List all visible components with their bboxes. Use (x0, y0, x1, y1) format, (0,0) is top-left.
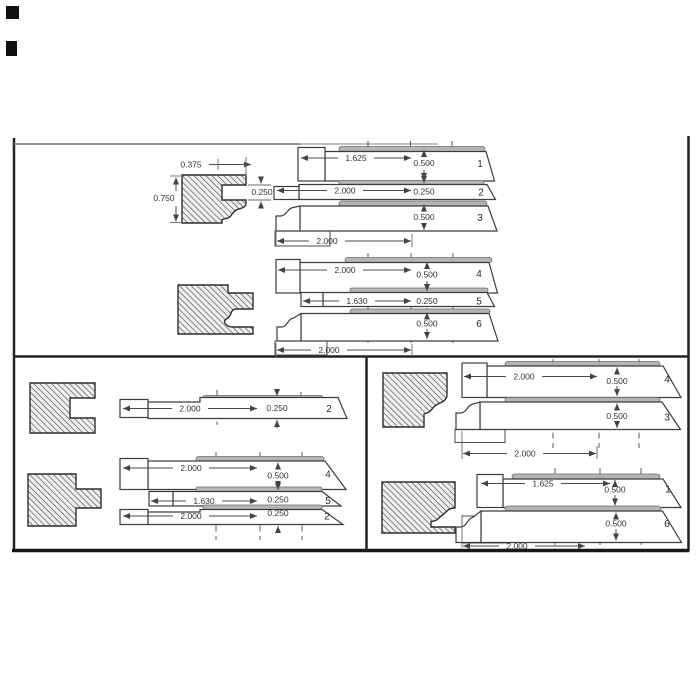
blade-1-drawing: 1.625 0.500 1 (477, 474, 681, 508)
dim-blade-3-thickness: 0.500 (413, 212, 435, 222)
blade-4-drawing: 2.000 0.500 4 (120, 457, 346, 490)
blade-1-tab (298, 148, 325, 182)
dim-blade-2-thickness: 0.250 (266, 403, 288, 413)
dim-blade-2-thickness: 0.250 (413, 187, 435, 197)
dim-blade-4-length: 2.000 (513, 372, 535, 382)
dim-blade-5-length: 1.630 (193, 496, 215, 506)
blade-2-outline (148, 510, 343, 525)
blade-1-tab (477, 475, 503, 508)
dim-profile-a-notch: 0.250 (251, 187, 273, 197)
dim-blade-2-length: 2.000 (180, 511, 202, 521)
dim-blade-1-length: 1.625 (532, 479, 554, 489)
dim-row-b-overall-width: 2.000 (318, 345, 340, 355)
scan-mark-bottom (6, 41, 17, 56)
dim-blade-6-thickness: 0.500 (416, 319, 438, 329)
blade-3-outline (300, 206, 497, 231)
section-top-row-a: 0.375 0.750 0.250 1.625 0.500 1 (153, 141, 497, 247)
blade-2-number-label: 2 (324, 512, 330, 523)
blade-3-edge-strip (339, 201, 487, 206)
dim-row-b-overall-width: 2.000 (506, 541, 528, 551)
profile-e-shape (383, 373, 447, 427)
section-bottom-right-row-b: 1.625 0.500 1 0.500 6 2.000 (382, 468, 682, 551)
technical-drawing: 0.375 0.750 0.250 1.625 0.500 1 (0, 0, 700, 700)
blade-6-drawing: 0.500 6 (275, 309, 498, 355)
dim-row-a-overall-width: 2.000 (514, 449, 536, 459)
scanned-cutter-drawing-page: 0.375 0.750 0.250 1.625 0.500 1 (0, 0, 700, 700)
dim-row-a-overall-width: 2.000 (316, 236, 338, 246)
blade-4-edge-strip (345, 258, 492, 263)
section-bottom-left-row-a: 2.000 0.250 2 (30, 383, 347, 433)
blade-6-ogee-end (277, 314, 301, 342)
blade-3-outline (480, 402, 681, 430)
blade-2-outline (299, 185, 496, 200)
blade-2-drawing: 2.000 0.250 2 (120, 505, 343, 533)
blade-3-drawing: 0.500 3 (275, 201, 497, 246)
profile-d-shape (28, 474, 101, 526)
profile-b-shape (178, 285, 253, 334)
dim-blade-6-thickness: 0.500 (605, 519, 627, 529)
dim-blade-4-thickness: 0.500 (606, 376, 628, 386)
dim-blade-5-length: 1.630 (346, 296, 368, 306)
blade-4-number-label: 4 (664, 375, 670, 386)
profile-a-shape (182, 175, 246, 223)
blade-3-shank (455, 430, 505, 443)
blade-5-number-label: 5 (476, 297, 482, 308)
blade-4-number-label: 4 (325, 470, 331, 481)
blade-1-number-label: 1 (477, 159, 483, 170)
blade-4-number-label: 4 (476, 269, 482, 280)
blade-6-outline (301, 314, 498, 342)
dim-blade-4-length: 2.000 (334, 265, 356, 275)
blade-3-ogee-end (276, 206, 300, 231)
blade-2-drawing: 2.000 0.250 2 (120, 389, 347, 428)
blade-6-drawing: 0.500 6 (456, 506, 682, 543)
dim-profile-a-height: 0.750 (153, 193, 175, 203)
blade-6-outline (481, 511, 682, 543)
blade-4-tab (120, 459, 148, 490)
dim-blade-4-thickness: 0.500 (267, 471, 289, 481)
section-top-row-b: 2.000 0.500 4 1.630 0.250 5 (178, 253, 498, 358)
blade-6-number-label: 6 (664, 519, 670, 530)
blade-3-number-label: 3 (664, 413, 670, 424)
dim-blade-1-thickness: 0.500 (413, 158, 435, 168)
blade-4-tab (462, 363, 487, 398)
blade-5-tab (301, 293, 323, 307)
dim-blade-3-thickness: 0.500 (606, 411, 628, 421)
section-bottom-left-row-b: 2.000 0.500 4 1.630 0.250 5 2.000 (28, 452, 346, 540)
blade-2-tab (120, 510, 148, 525)
blade-4-tab (276, 260, 300, 294)
blade-6-edge-strip (505, 506, 661, 511)
blade-1-edge-strip (339, 147, 485, 152)
blade-3-ogee-end (456, 402, 480, 430)
blade-5-edge-strip (196, 487, 322, 492)
scan-mark-top (6, 6, 19, 19)
blade-2-edge-strip (203, 505, 322, 510)
dim-blade-2-length: 2.000 (334, 186, 356, 196)
blade-2-number-label: 2 (326, 404, 332, 415)
blade-5-number-label: 5 (325, 496, 331, 507)
blade-5-edge-strip (350, 288, 488, 293)
dim-blade-2-thickness: 0.250 (267, 508, 289, 518)
dim-blade-4-length: 2.000 (180, 463, 202, 473)
dim-blade-5-thickness: 0.250 (267, 495, 289, 505)
blade-3-number-label: 3 (477, 213, 483, 224)
blade-2-tab (274, 187, 299, 200)
dim-blade-2-length: 2.000 (179, 404, 201, 414)
blade-3-drawing: 0.500 3 (455, 398, 681, 443)
dim-profile-a-top-width: 0.375 (180, 160, 202, 170)
section-bottom-right-row-a: 2.000 0.500 4 0.500 3 2.000 (383, 359, 681, 459)
blade-4-drawing: 2.000 0.500 4 (462, 362, 681, 398)
blade-6-number-label: 6 (476, 319, 482, 330)
blade-2-number-label: 2 (478, 188, 484, 199)
dim-blade-1-length: 1.625 (345, 153, 367, 163)
blade-1-drawing: 1.625 0.500 1 (298, 147, 495, 182)
blade-5-tab (149, 492, 173, 507)
profile-f-shape (382, 482, 455, 533)
blade-4-outline (148, 461, 346, 490)
dim-blade-5-thickness: 0.250 (416, 296, 438, 306)
blade-1-number-label: 1 (665, 485, 671, 496)
dim-blade-1-thickness: 0.500 (604, 485, 626, 495)
profile-c-shape (30, 383, 95, 433)
dim-blade-4-thickness: 0.500 (416, 270, 438, 280)
